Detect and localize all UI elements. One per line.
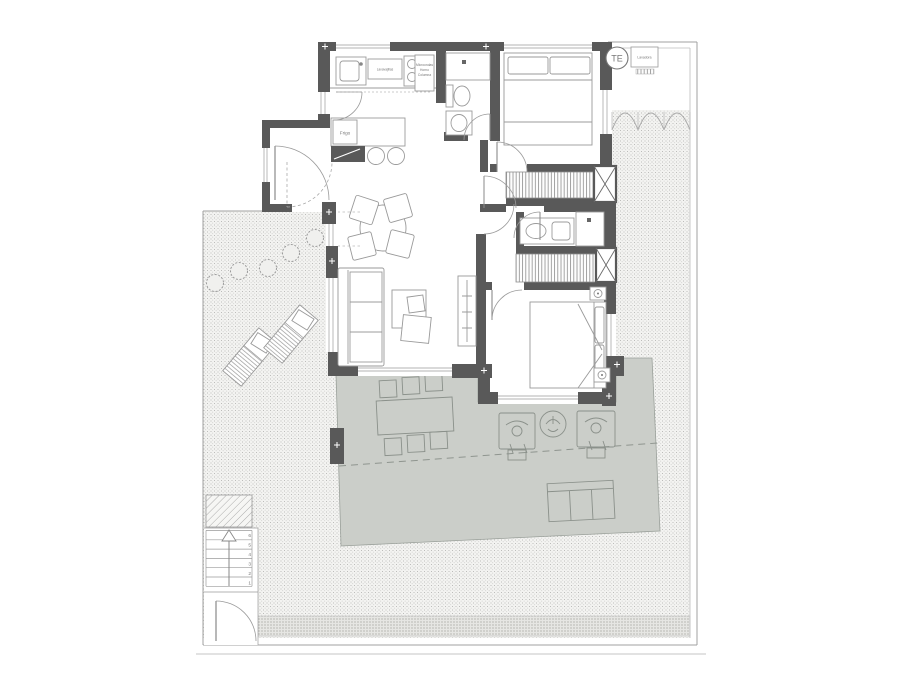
side-table <box>407 295 425 313</box>
tall-unit-line2: Horno <box>420 68 429 72</box>
te-label: TE <box>611 54 623 64</box>
tall-unit-line3: Columna <box>418 73 431 77</box>
window <box>326 224 338 246</box>
stair-number: 1 <box>248 581 251 587</box>
sofa <box>338 268 384 366</box>
washer-hatch <box>636 69 654 74</box>
window <box>318 92 330 114</box>
wall <box>476 234 486 366</box>
fridge-label: Frigo <box>340 131 351 136</box>
stairs-hatched-block <box>206 495 252 527</box>
wall <box>318 42 330 92</box>
bush-icon <box>231 263 248 280</box>
stair-number: 6 <box>248 533 251 539</box>
washer-label: Lavadora <box>637 56 651 60</box>
lamp-dot <box>601 374 603 376</box>
stairs-area: 1 2 3 4 5 6 <box>204 495 258 645</box>
wall <box>262 204 292 212</box>
wall <box>490 164 497 172</box>
stair-number: 4 <box>248 552 251 558</box>
pillow <box>508 57 548 74</box>
wall <box>262 120 270 148</box>
pillow <box>595 307 604 343</box>
dining-chair <box>385 229 414 258</box>
bush-icon <box>283 245 300 262</box>
window <box>504 42 592 51</box>
wardrobe <box>506 172 594 198</box>
tall-unit-line1: Microondas <box>416 63 433 67</box>
coffee-table-small <box>401 315 432 344</box>
shower-tray <box>576 212 604 246</box>
window <box>326 278 338 352</box>
sliding-door <box>498 392 578 404</box>
floor-plan-canvas: 1 2 3 4 5 6 <box>0 0 900 675</box>
wardrobe <box>516 254 600 282</box>
wall <box>478 392 498 404</box>
bedroom-1 <box>497 53 594 198</box>
bush-icon <box>260 260 277 277</box>
bush-icon <box>307 230 324 247</box>
garden-border-band <box>252 616 690 636</box>
shower-drain-icon <box>462 60 466 64</box>
shower-tray <box>446 53 490 80</box>
wall <box>436 51 446 103</box>
window <box>600 90 612 134</box>
toilet <box>454 86 470 106</box>
wall <box>490 51 500 141</box>
shower-drain-icon <box>587 218 591 222</box>
dining-chair <box>347 231 376 260</box>
toilet-tank <box>446 85 453 107</box>
wall <box>480 140 488 172</box>
bar-stool <box>368 148 385 165</box>
wall <box>262 120 324 128</box>
stair-number: 3 <box>248 562 251 568</box>
floor-plan-svg: 1 2 3 4 5 6 <box>0 0 900 675</box>
dishwasher-label: Lavavajillas <box>377 68 394 72</box>
wall <box>527 164 602 172</box>
wall <box>544 204 604 212</box>
window <box>262 148 270 182</box>
bush-icon <box>207 275 224 292</box>
pillow <box>550 57 590 74</box>
window <box>336 42 390 51</box>
stair-number: 2 <box>248 571 251 577</box>
sink-tap-icon <box>359 62 363 66</box>
lamp-dot <box>597 293 599 295</box>
bar-stool <box>388 148 405 165</box>
wall <box>516 246 604 254</box>
stair-number: 5 <box>248 543 251 549</box>
